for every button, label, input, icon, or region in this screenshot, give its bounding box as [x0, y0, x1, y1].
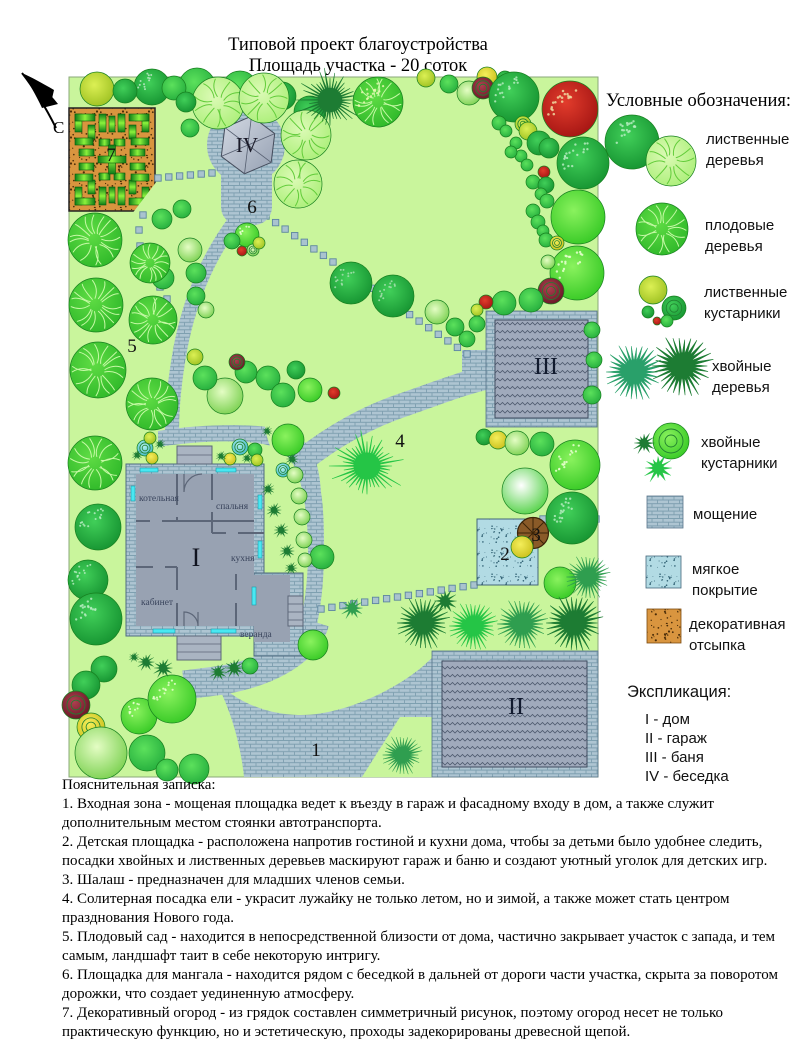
svg-text:1. Входная зона - мощеная площ: 1. Входная зона - мощеная площадка ведет…	[62, 796, 714, 812]
svg-text:самым, ландшафт таит в себе не: самым, ландшафт таит в себе некоторую ин…	[62, 948, 380, 964]
svg-text:деревья: деревья	[705, 238, 763, 255]
svg-text:кустарники: кустарники	[704, 305, 781, 322]
svg-text:2: 2	[500, 544, 510, 565]
svg-text:6. Площадка для мангала - нахо: 6. Площадка для мангала - находится рядо…	[62, 967, 778, 983]
svg-text:котельная: котельная	[139, 494, 179, 504]
svg-text:3. Шалаш - предназначен для мл: 3. Шалаш - предназначен для младших член…	[62, 872, 405, 888]
svg-text:II - гараж: II - гараж	[645, 730, 707, 747]
svg-text:деревья: деревья	[706, 152, 764, 169]
svg-text:лиственные: лиственные	[704, 284, 787, 301]
svg-text:плодовые: плодовые	[705, 217, 774, 234]
svg-text:мягкое: мягкое	[692, 561, 739, 578]
svg-text:7. Декоративный огород - из гр: 7. Декоративный огород - из грядок соста…	[62, 1005, 723, 1021]
svg-text:Условные обозначения:: Условные обозначения:	[606, 91, 791, 111]
svg-text:деревья: деревья	[712, 379, 770, 396]
svg-text:кухня: кухня	[231, 554, 255, 564]
svg-text:празднования Нового года.: празднования Нового года.	[62, 910, 234, 926]
svg-text:3: 3	[531, 525, 541, 546]
svg-text:5: 5	[127, 336, 137, 357]
svg-text:кустарники: кустарники	[701, 455, 778, 472]
svg-text:посадки хвойных и лиственных д: посадки хвойных и лиственных деревьев ма…	[62, 853, 767, 869]
svg-text:мощение: мощение	[693, 506, 757, 523]
svg-text:спальня: спальня	[216, 502, 249, 512]
svg-text:I - дом: I - дом	[645, 711, 690, 728]
svg-text:хвойные: хвойные	[712, 358, 771, 375]
svg-text:IV: IV	[236, 133, 258, 157]
svg-text:III - баня: III - баня	[645, 749, 704, 766]
svg-text:7: 7	[106, 145, 116, 166]
svg-text:покрытие: покрытие	[692, 582, 758, 599]
svg-text:лиственные: лиственные	[706, 131, 789, 148]
svg-text:практическую функцию, но и эст: практическую функцию, но и эстетическую,…	[62, 1024, 630, 1040]
svg-text:С: С	[53, 118, 64, 137]
svg-text:I: I	[192, 543, 201, 572]
svg-text:отсыпка: отсыпка	[689, 637, 746, 654]
svg-text:4: 4	[395, 431, 405, 452]
svg-text:дорожки, что создает уединенну: дорожки, что создает уединенную атмосфер…	[62, 986, 354, 1002]
svg-text:1: 1	[311, 740, 321, 761]
svg-text:дополнительным местом стоянки: дополнительным местом стоянки автотрансп…	[62, 815, 382, 831]
svg-text:Пояснительная записка:: Пояснительная записка:	[62, 777, 216, 793]
svg-text:хвойные: хвойные	[701, 434, 760, 451]
svg-text:декоративная: декоративная	[689, 616, 786, 633]
svg-text:IV - беседка: IV - беседка	[645, 768, 729, 785]
svg-text:II: II	[508, 694, 524, 720]
svg-text:6: 6	[247, 197, 257, 218]
svg-text:кабинет: кабинет	[141, 597, 174, 608]
svg-text:Площадь участка - 20 соток: Площадь участка - 20 соток	[249, 56, 468, 76]
svg-text:4. Солитерная посадка ели - ук: 4. Солитерная посадка ели - украсит лужа…	[62, 891, 730, 907]
svg-text:2. Детская площадка - располож: 2. Детская площадка - расположена напрот…	[62, 834, 762, 850]
svg-text:веранда: веранда	[240, 630, 273, 640]
svg-text:Типовой проект благоустройства: Типовой проект благоустройства	[228, 35, 488, 55]
svg-text:5. Плодовый сад - находится в: 5. Плодовый сад - находится в непосредст…	[62, 929, 776, 945]
svg-text:III: III	[534, 354, 558, 380]
svg-text:Экспликация:: Экспликация:	[627, 683, 731, 701]
